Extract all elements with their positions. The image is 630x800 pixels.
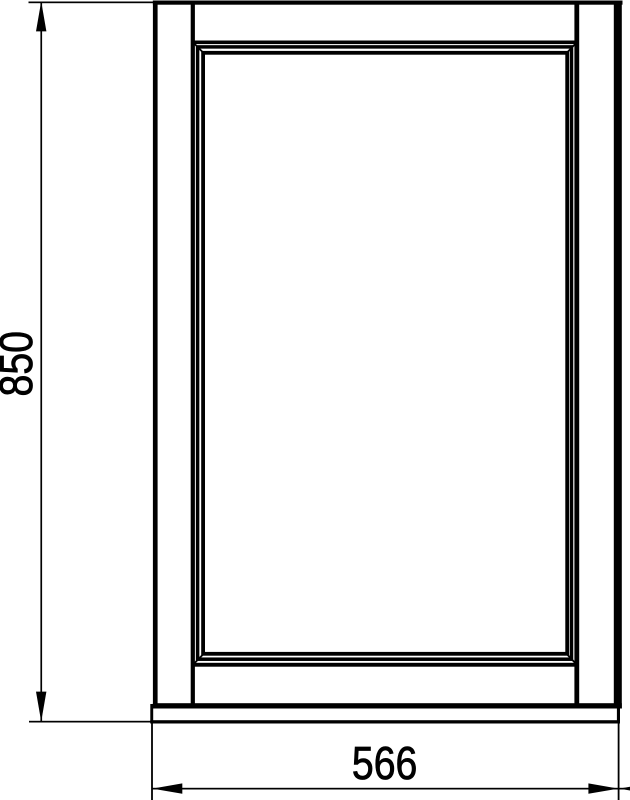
svg-text:566: 566	[352, 738, 418, 790]
svg-text:850: 850	[0, 331, 43, 397]
